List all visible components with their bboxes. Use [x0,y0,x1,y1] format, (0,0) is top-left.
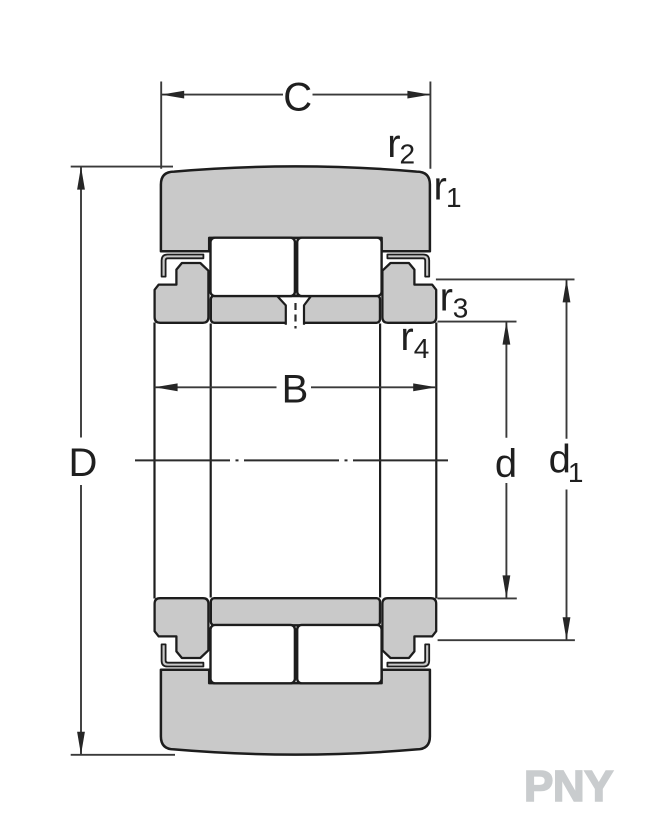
svg-text:4: 4 [414,333,430,364]
svg-text:3: 3 [453,293,469,324]
svg-text:r: r [434,165,447,209]
svg-text:C: C [283,75,312,119]
svg-text:r: r [440,276,453,320]
svg-text:B: B [282,368,309,412]
svg-text:1: 1 [446,182,462,213]
svg-text:PNY: PNY [524,762,613,811]
svg-text:r: r [400,315,413,359]
svg-text:2: 2 [400,138,416,169]
svg-text:1: 1 [568,457,584,488]
svg-text:d: d [495,442,517,486]
svg-text:D: D [69,441,98,485]
